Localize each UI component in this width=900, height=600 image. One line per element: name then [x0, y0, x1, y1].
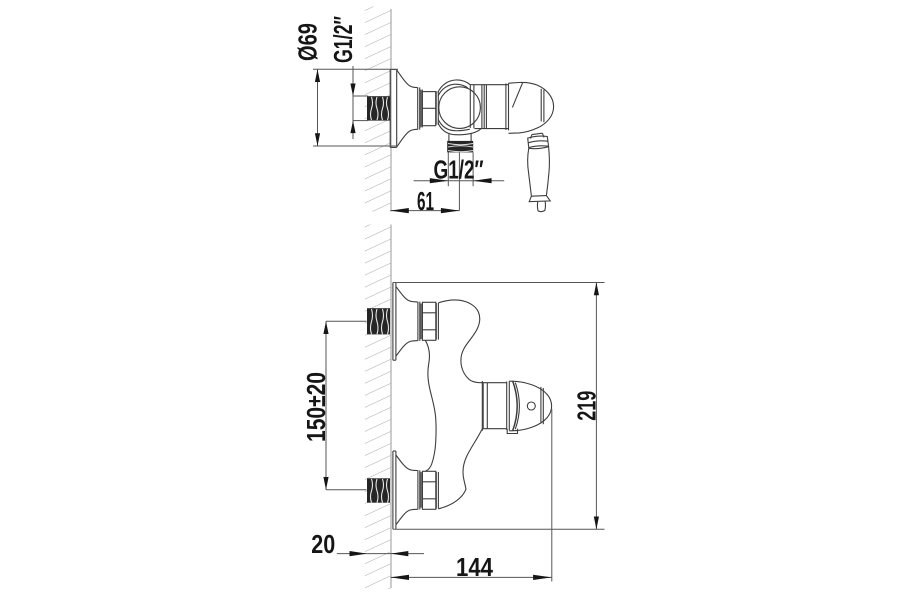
svg-text:219: 219 [572, 391, 602, 421]
svg-text:20: 20 [311, 529, 335, 559]
svg-text:G1/2″: G1/2″ [434, 154, 484, 184]
svg-text:Ø69: Ø69 [293, 23, 323, 61]
svg-text:144: 144 [456, 552, 493, 582]
svg-text:G1/2″: G1/2″ [328, 16, 358, 63]
svg-text:61: 61 [417, 186, 434, 216]
svg-text:150±20: 150±20 [301, 372, 331, 442]
